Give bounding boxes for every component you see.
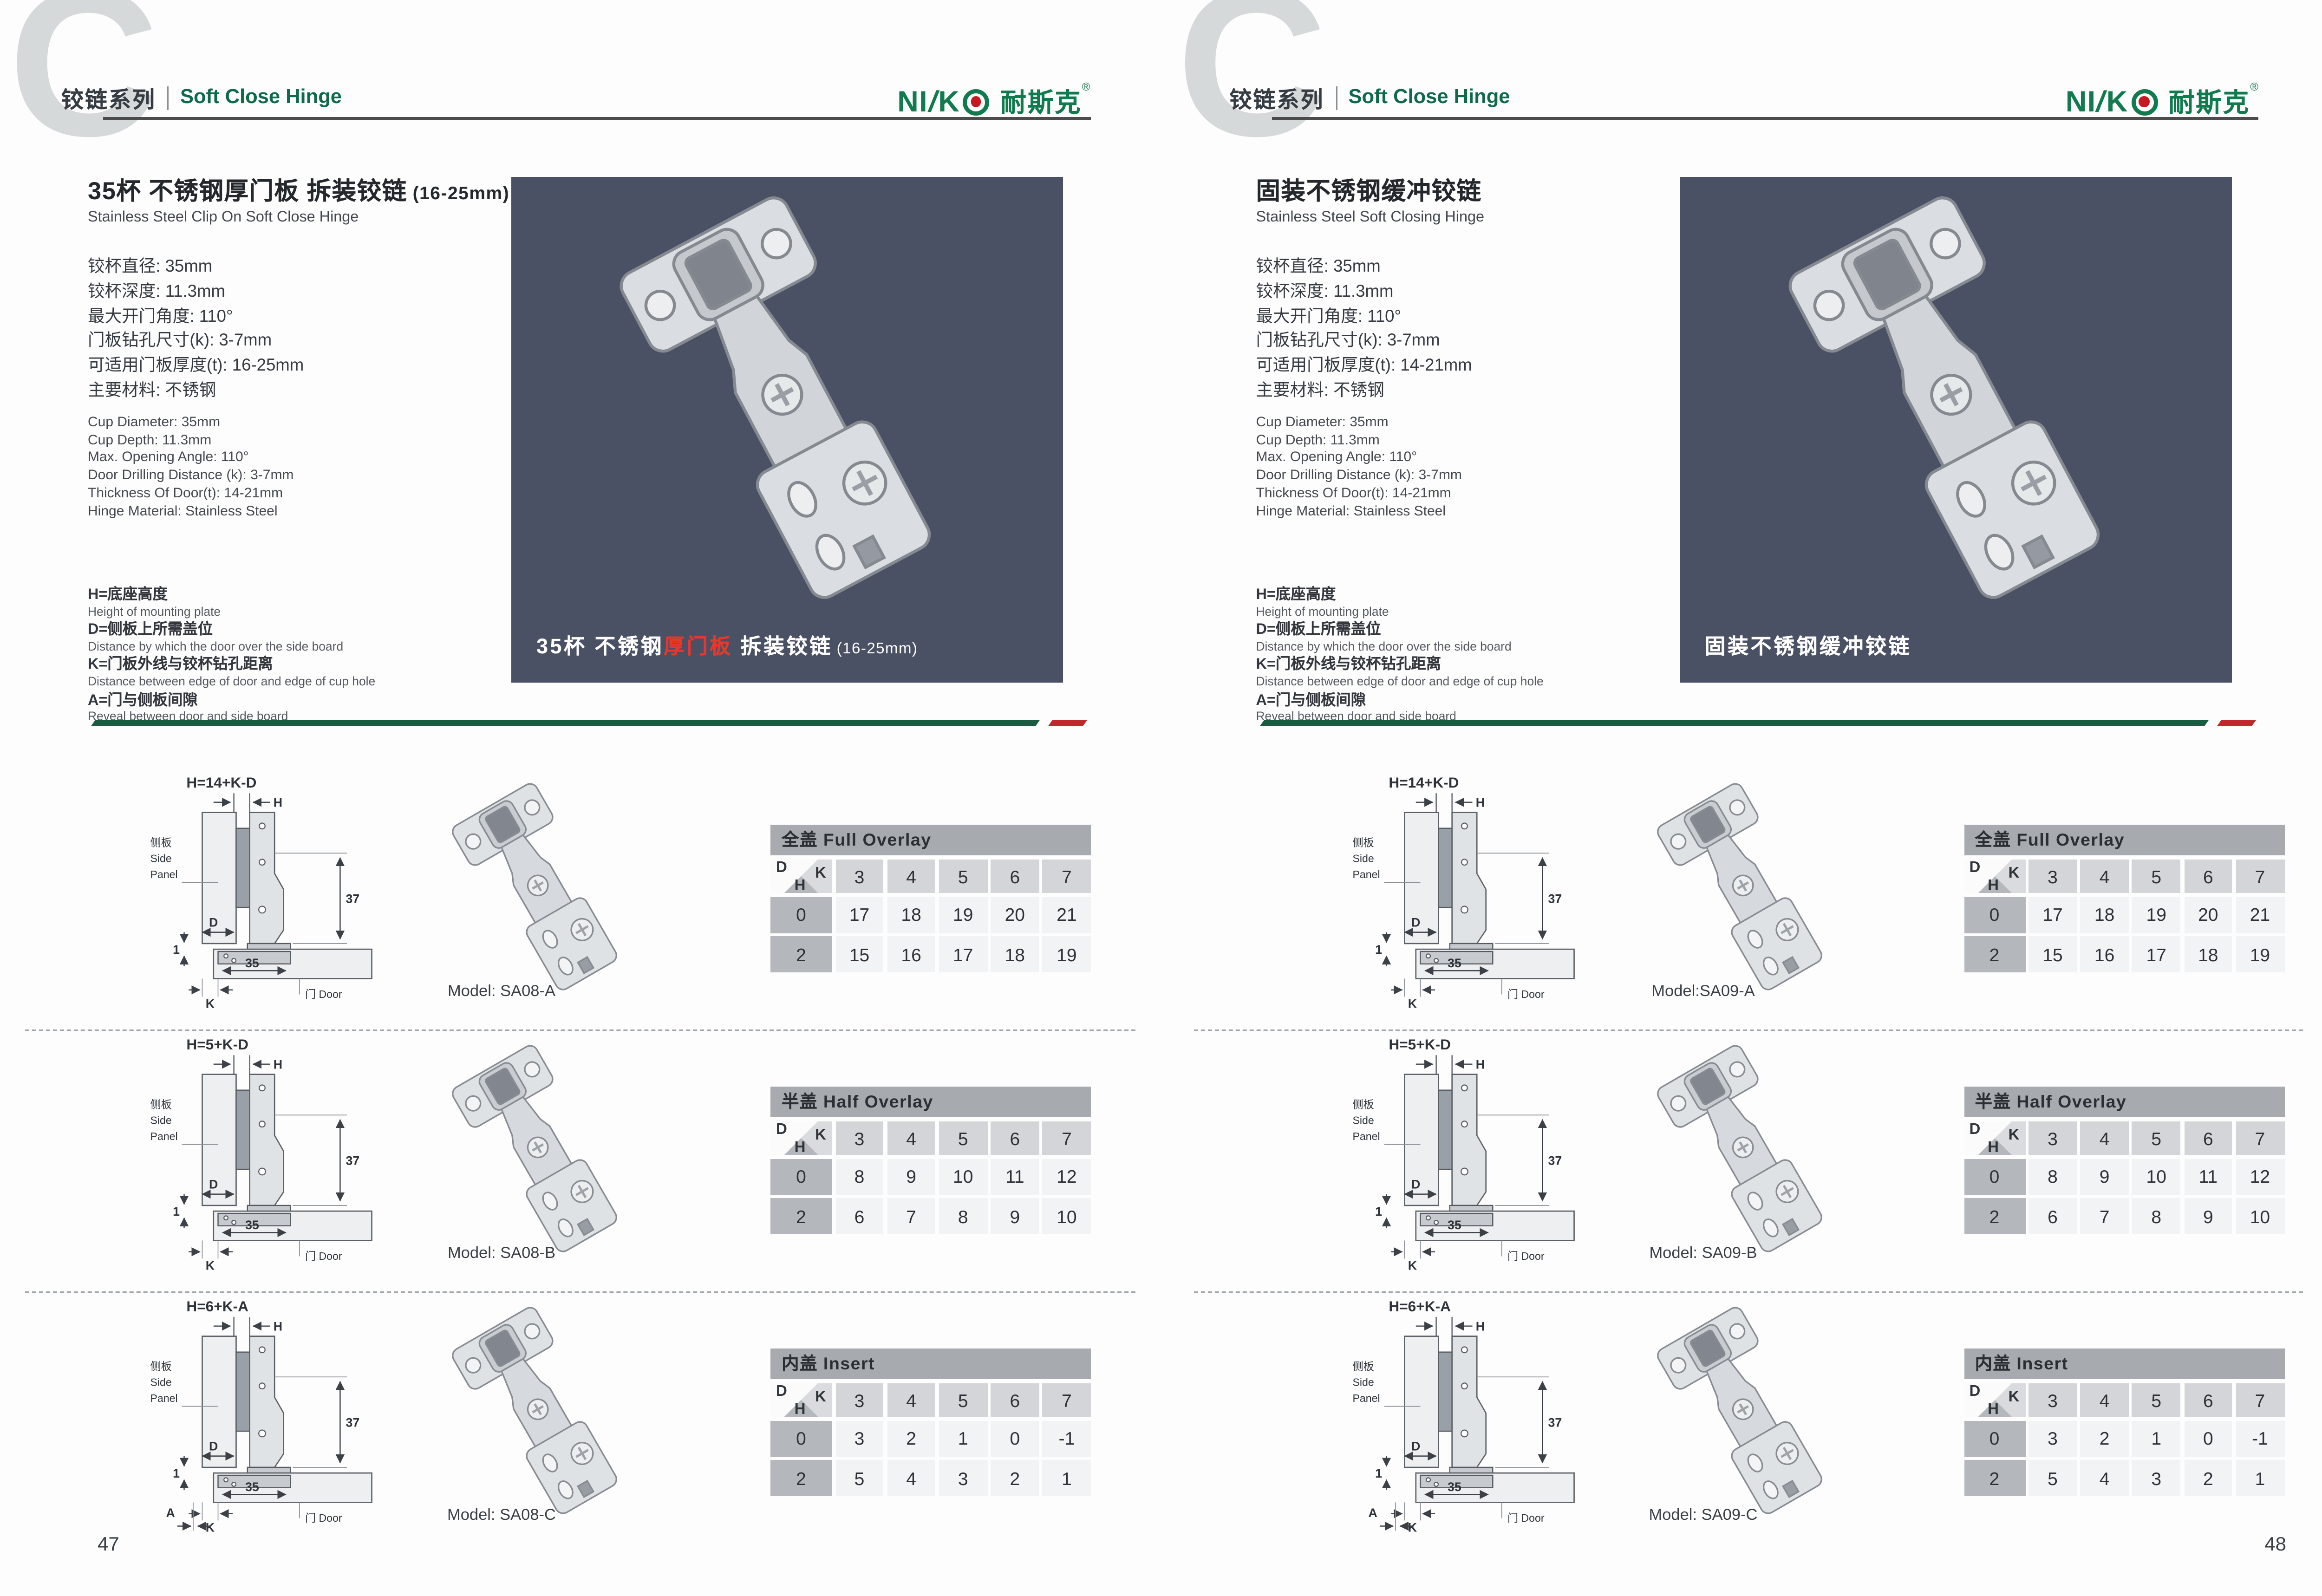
corner-d: D <box>1970 1383 1981 1400</box>
series-header: 铰链系列 Soft Close Hinge <box>61 81 342 114</box>
hinge-arm-shape <box>1451 1075 1485 1205</box>
table-value: 8 <box>835 1159 884 1195</box>
table-value: 7 <box>887 1198 935 1234</box>
side-panel-label-cn: 侧板 <box>1352 1361 1373 1373</box>
table-value: 15 <box>2028 936 2077 972</box>
installation-diagram: H=6+K-A H 侧板 Side Panel 37 <box>111 1296 463 1535</box>
spec-line: Cup Diameter: 35mm <box>1256 415 1462 433</box>
product-photo: 35杯 不锈钢厚门板 拆装铰链(16-25mm) <box>511 177 1063 683</box>
table-value: 5 <box>2028 1460 2077 1496</box>
side-panel-shape <box>202 813 236 944</box>
logo-o-icon <box>963 89 989 115</box>
series-title-en: Soft Close Hinge <box>1348 86 1510 109</box>
table-value: 2 <box>991 1460 1039 1496</box>
dimension-legend: H=底座高度 Height of mounting plate D=侧板上所需盖… <box>1256 586 1674 727</box>
side-panel-label-en: Panel <box>1352 1392 1379 1404</box>
product-photo: 固装不锈钢缓冲铰链 <box>1680 177 2231 683</box>
legend-item: D=侧板上所需盖位 Distance by which the door ove… <box>1256 622 1674 653</box>
page-number: 48 <box>2264 1532 2286 1554</box>
col-header: 7 <box>2236 1383 2284 1417</box>
col-header: 4 <box>887 860 935 893</box>
specs-english: Cup Diameter: 35mmCup Depth: 11.3mmMax. … <box>88 415 294 521</box>
spec-line: 铰杯深度: 11.3mm <box>1256 280 1472 304</box>
col-header: 4 <box>2081 1383 2129 1417</box>
table-value: 8 <box>2028 1159 2077 1195</box>
col-header: 5 <box>2132 860 2180 893</box>
specs-chinese: 铰杯直径: 35mm铰杯深度: 11.3mm最大开门角度: 110°门板钻孔尺寸… <box>88 255 304 404</box>
row-label: 0 <box>1964 1420 2025 1457</box>
side-panel-label-en: Panel <box>150 1392 177 1404</box>
dim-37-label: 37 <box>1547 1415 1561 1429</box>
col-header: 5 <box>939 1121 987 1155</box>
col-header: 4 <box>2081 1121 2129 1155</box>
model-label: Model: SA08-C <box>334 1507 669 1524</box>
hinge-arm-shape <box>1451 813 1485 944</box>
dim-d-label: D <box>209 1177 218 1191</box>
product-title-en: Stainless Steel Clip On Soft Close Hinge <box>88 209 359 226</box>
side-panel-shape <box>1404 1075 1438 1205</box>
side-panel-label-cn: 侧板 <box>150 1099 171 1111</box>
corner-k: K <box>815 865 826 882</box>
col-header: 6 <box>2184 1121 2232 1155</box>
col-header: 7 <box>2236 1121 2284 1155</box>
diagram-formula: H=5+K-D <box>186 1036 248 1053</box>
installation-diagram: H=6+K-A H 侧板 Side Panel 37 <box>1313 1296 1664 1535</box>
col-header: 4 <box>887 1383 935 1417</box>
table-value: 1 <box>2132 1420 2180 1457</box>
legend-cn: D=侧板上所需盖位 <box>1256 622 1674 639</box>
model-label: Model: SA08-B <box>334 1245 669 1262</box>
table-value: 18 <box>887 897 935 933</box>
col-header: 3 <box>835 1121 884 1155</box>
dim-k-label: K <box>206 1521 215 1535</box>
corner-cell: D K H <box>770 860 832 893</box>
side-panel-shape <box>202 1075 236 1205</box>
table-value: 18 <box>991 936 1039 972</box>
hinge-arm-shape <box>250 813 284 944</box>
table-value: 16 <box>887 936 935 972</box>
series-divider <box>167 86 169 110</box>
legend-cn: K=门板外线与铰杯钻孔距离 <box>1256 657 1674 674</box>
photo-caption: 35杯 不锈钢厚门板 拆装铰链(16-25mm) <box>536 631 918 660</box>
photo-caption: 固装不锈钢缓冲铰链 <box>1705 631 1916 660</box>
row-label: 2 <box>770 1198 832 1234</box>
dim-1-label: 1 <box>173 1205 180 1218</box>
corner-h: H <box>795 1401 806 1418</box>
side-panel-label-en: Side <box>150 853 171 865</box>
dim-d-label: D <box>209 915 218 929</box>
dim-d-label: D <box>1411 1439 1420 1453</box>
spec-line: Max. Opening Angle: 110° <box>1256 450 1462 468</box>
legend-cn: H=底座高度 <box>88 586 506 604</box>
table-value: 16 <box>2081 936 2129 972</box>
table-value: 20 <box>2184 897 2232 933</box>
hinge-section: H=6+K-A H 侧板 Side Panel 37 <box>0 1293 1168 1555</box>
model-label: Model: SA09-C <box>1536 1507 1871 1524</box>
table-grid: D K H 3 4 5 6 7 0 8 9 10 11 12 2 6 7 8 9 <box>1964 1121 2284 1234</box>
spec-line: 可适用门板厚度(t): 16-25mm <box>88 354 304 379</box>
corner-d: D <box>776 860 787 876</box>
corner-k: K <box>815 1127 826 1144</box>
table-title: 半盖 Half Overlay <box>770 1087 1091 1117</box>
legend-cn: D=侧板上所需盖位 <box>88 622 506 639</box>
table-value: 2 <box>887 1420 935 1457</box>
table-value: 9 <box>2081 1159 2129 1195</box>
series-divider <box>1336 86 1337 110</box>
dim-h-label: H <box>1475 795 1484 809</box>
legend-en: Distance between edge of door and edge o… <box>88 674 506 689</box>
spec-line: 铰杯深度: 11.3mm <box>88 280 304 304</box>
side-panel-shape <box>1404 1336 1438 1467</box>
spec-line: 门板钻孔尺寸(k): 3-7mm <box>88 329 304 354</box>
product-title-cn: 固装不锈钢缓冲铰链 <box>1256 177 1482 205</box>
table-value: 7 <box>2081 1198 2129 1234</box>
header-rule <box>1272 117 2259 119</box>
table-value: 17 <box>2028 897 2077 933</box>
spec-line: Hinge Material: Stainless Steel <box>88 504 294 521</box>
dim-h-label: H <box>1475 1319 1484 1333</box>
dim-k-label: K <box>1407 1521 1416 1535</box>
corner-cell: D K H <box>1964 860 2025 893</box>
table-grid: D K H 3 4 5 6 7 0 3 2 1 0 -1 2 5 4 3 2 <box>1964 1383 2284 1496</box>
dim-d-label: D <box>1411 915 1420 929</box>
table-value: 17 <box>2132 936 2180 972</box>
col-header: 7 <box>1043 1121 1091 1155</box>
side-panel-label-en: Panel <box>1352 1130 1379 1142</box>
product-title: 35杯 不锈钢厚门板 拆装铰链(16-25mm) <box>88 173 509 208</box>
product-title: 固装不锈钢缓冲铰链 <box>1256 173 1487 208</box>
corner-h: H <box>1988 878 1999 894</box>
col-header: 3 <box>2028 860 2077 893</box>
brand-logo: NI / K 耐斯克 ® <box>897 84 1090 120</box>
table-grid: D K H 3 4 5 6 7 0 8 9 10 11 12 2 6 7 8 9 <box>770 1121 1091 1234</box>
corner-k: K <box>2009 865 2020 882</box>
legend-en: Distance by which the door over the side… <box>1256 639 1674 653</box>
side-panel-label-cn: 侧板 <box>150 1361 171 1373</box>
table-value: 5 <box>835 1460 884 1496</box>
table-value: 1 <box>939 1420 987 1457</box>
mounting-plate-shape <box>236 1090 249 1169</box>
side-panel-label-en: Panel <box>150 868 177 880</box>
table-value: 8 <box>2132 1198 2180 1234</box>
table-value: 19 <box>2132 897 2180 933</box>
registered-mark: ® <box>2250 81 2258 93</box>
corner-cell: D K H <box>1964 1383 2025 1417</box>
diagram-formula: H=6+K-A <box>1388 1298 1450 1315</box>
model-label: Model: SA08-A <box>334 984 669 1000</box>
overlay-table: 全盖 Full Overlay D K H 3 4 5 6 7 0 17 18 … <box>1964 825 2284 972</box>
table-value: 2 <box>2184 1460 2232 1496</box>
sections: H=14+K-D H 侧板 Side Panel 37 <box>0 769 1168 1555</box>
table-value: 8 <box>939 1198 987 1234</box>
spec-line: Thickness Of Door(t): 14-21mm <box>1256 486 1462 503</box>
table-grid: D K H 3 4 5 6 7 0 17 18 19 20 21 2 15 16… <box>770 860 1091 972</box>
caption-suffix: (16-25mm) <box>837 641 918 658</box>
side-panel-label-en: Side <box>1352 853 1373 865</box>
dim-35-label: 35 <box>1447 1218 1461 1232</box>
mounting-plate-shape <box>1438 1090 1451 1169</box>
side-panel-label-cn: 侧板 <box>150 837 171 849</box>
table-value: 18 <box>2081 897 2129 933</box>
table-value: 10 <box>2236 1198 2284 1234</box>
table-value: 2 <box>2081 1420 2129 1457</box>
hinge-arm-shape <box>1451 1336 1485 1467</box>
dim-37-label: 37 <box>346 892 360 905</box>
series-title-en: Soft Close Hinge <box>180 86 342 109</box>
dim-k-label: K <box>1407 997 1416 1011</box>
dim-1-label: 1 <box>1375 943 1382 957</box>
hinge-arm-shape <box>250 1075 284 1205</box>
table-value: 21 <box>2236 897 2284 933</box>
dim-h-label: H <box>274 1057 282 1071</box>
row-label: 0 <box>770 1420 832 1457</box>
spec-line: Max. Opening Angle: 110° <box>88 450 294 468</box>
registered-mark: ® <box>1082 81 1090 93</box>
row-label: 2 <box>1964 936 2025 972</box>
spec-line: Cup Depth: 11.3mm <box>1256 433 1462 450</box>
dim-1-label: 1 <box>1375 1205 1382 1218</box>
brand-logo: NI / K 耐斯克 ® <box>2066 84 2258 120</box>
mounting-plate-shape <box>1438 1352 1451 1431</box>
series-title-cn: 铰链系列 <box>1230 81 1324 114</box>
mounting-plate-shape <box>1438 828 1451 907</box>
table-value: 15 <box>835 936 884 972</box>
product-title-en: Stainless Steel Soft Closing Hinge <box>1256 209 1485 226</box>
legend-en: Distance by which the door over the side… <box>88 639 506 653</box>
row-label: 2 <box>1964 1460 2025 1496</box>
legend-cn: A=门与侧板间隙 <box>1256 692 1674 710</box>
dim-a-group: A <box>1368 1502 1413 1531</box>
corner-h: H <box>1988 1140 1999 1156</box>
dim-h-label: H <box>1475 1057 1484 1071</box>
dim-35-label: 35 <box>245 1218 259 1232</box>
table-value: 9 <box>2184 1198 2232 1234</box>
legend-item: H=底座高度 Height of mounting plate <box>88 586 506 618</box>
installation-diagram: H=5+K-D H 侧板 Side Panel 37 <box>111 1034 463 1273</box>
legend-item: H=底座高度 Height of mounting plate <box>1256 586 1674 618</box>
corner-cell: D K H <box>770 1383 832 1417</box>
dim-1-label: 1 <box>173 1466 180 1480</box>
diagram-formula: H=14+K-D <box>186 774 256 791</box>
legend-en: Height of mounting plate <box>1256 604 1674 619</box>
side-panel-label-en: Panel <box>150 1130 177 1142</box>
table-value: 10 <box>2132 1159 2180 1195</box>
dim-h-label: H <box>274 795 282 809</box>
corner-h: H <box>795 1140 806 1156</box>
legend-item: A=门与侧板间隙 Reveal between door and side bo… <box>1256 692 1674 723</box>
table-value: 17 <box>835 897 884 933</box>
col-header: 3 <box>2028 1121 2077 1155</box>
dim-a-label: A <box>166 1506 175 1520</box>
model-label: Model:SA09-A <box>1536 984 1871 1000</box>
side-panel-label-en: Side <box>1352 1376 1373 1388</box>
table-value: 1 <box>1043 1460 1091 1496</box>
row-label: 0 <box>770 1159 832 1195</box>
dim-35-label: 35 <box>245 1480 259 1494</box>
hinge-section: H=5+K-D H 侧板 Side Panel 37 <box>1168 1031 2322 1293</box>
dim-35-label: 35 <box>1447 1480 1461 1494</box>
dimension-legend: H=底座高度 Height of mounting plate D=侧板上所需盖… <box>88 586 506 727</box>
red-rule <box>2217 720 2256 725</box>
logo-o-icon <box>2131 89 2158 115</box>
col-header: 3 <box>835 860 884 893</box>
mounting-plate-shape <box>236 828 249 907</box>
overlay-table: 半盖 Half Overlay D K H 3 4 5 6 7 0 8 9 10… <box>1964 1087 2284 1234</box>
product-title-suffix: (16-25mm) <box>413 182 510 203</box>
legend-item: K=门板外线与铰杯钻孔距离 Distance between edge of d… <box>1256 657 1674 688</box>
specs-english: Cup Diameter: 35mmCup Depth: 11.3mmMax. … <box>1256 415 1462 521</box>
spec-line: 主要材料: 不锈钢 <box>88 379 304 404</box>
diagram-formula: H=14+K-D <box>1388 774 1458 791</box>
green-rule <box>91 720 1040 725</box>
table-value: 19 <box>1043 936 1091 972</box>
table-value: 3 <box>835 1420 884 1457</box>
table-value: 9 <box>991 1198 1039 1234</box>
green-rule <box>1260 720 2208 725</box>
logo-text: NI <box>2066 87 2096 117</box>
table-value: 0 <box>991 1420 1039 1457</box>
table-title: 全盖 Full Overlay <box>770 825 1091 855</box>
spec-line: Cup Diameter: 35mm <box>88 415 294 433</box>
caption-text: 固装不锈钢缓冲铰链 <box>1705 635 1912 659</box>
logo-text-cn: 耐斯克 <box>2169 84 2250 120</box>
overlay-table: 全盖 Full Overlay D K H 3 4 5 6 7 0 17 18 … <box>770 825 1091 972</box>
dim-k-label: K <box>1407 1259 1416 1273</box>
header-rule <box>103 117 1090 119</box>
col-header: 4 <box>887 1121 935 1155</box>
corner-k: K <box>815 1389 826 1406</box>
corner-cell: D K H <box>770 1121 832 1155</box>
table-value: 6 <box>2028 1198 2077 1234</box>
table-title: 半盖 Half Overlay <box>1964 1087 2284 1117</box>
table-value: 4 <box>2081 1460 2129 1496</box>
spec-line: 铰杯直径: 35mm <box>1256 255 1472 280</box>
table-title: 内盖 Insert <box>770 1348 1091 1379</box>
col-header: 5 <box>939 1383 987 1417</box>
table-value: 3 <box>2028 1420 2077 1457</box>
legend-cn: A=门与侧板间隙 <box>88 692 506 710</box>
model-label: Model: SA09-B <box>1536 1245 1871 1262</box>
row-label: 2 <box>770 936 832 972</box>
product-title-cn: 35杯 不锈钢厚门板 拆装铰链 <box>88 177 407 205</box>
accent-rule <box>93 720 1085 725</box>
series-header: 铰链系列 Soft Close Hinge <box>1230 81 1510 114</box>
spec-line: 最大开门角度: 110° <box>88 305 304 329</box>
table-value: 20 <box>991 897 1039 933</box>
legend-cn: K=门板外线与铰杯钻孔距离 <box>88 657 506 674</box>
table-value: -1 <box>2236 1420 2284 1457</box>
dim-k-label: K <box>206 997 215 1011</box>
diagram-formula: H=6+K-A <box>186 1298 248 1315</box>
col-header: 7 <box>1043 860 1091 893</box>
catalog-page: C 铰链系列 Soft Close Hinge NI / K 耐斯克 ® 固装不… <box>1168 0 2322 1596</box>
spec-line: 铰杯直径: 35mm <box>88 255 304 280</box>
table-value: 11 <box>991 1159 1039 1195</box>
table-value: 10 <box>1043 1198 1091 1234</box>
row-label: 0 <box>770 897 832 933</box>
corner-cell: D K H <box>1964 1121 2025 1155</box>
dim-37-label: 37 <box>346 1153 360 1167</box>
spec-line: 可适用门板厚度(t): 14-21mm <box>1256 354 1472 379</box>
side-panel-label-en: Side <box>1352 1114 1373 1127</box>
col-header: 6 <box>2184 860 2232 893</box>
installation-diagram: H=5+K-D H 侧板 Side Panel 37 <box>1313 1034 1664 1273</box>
col-header: 4 <box>2081 860 2129 893</box>
corner-k: K <box>2009 1127 2020 1144</box>
table-value: 12 <box>2236 1159 2284 1195</box>
table-value: 1 <box>2236 1460 2284 1496</box>
logo-text: NI <box>897 87 928 117</box>
dim-a-group: A <box>166 1502 211 1531</box>
col-header: 6 <box>991 1383 1039 1417</box>
side-panel-shape <box>1404 813 1438 944</box>
spec-line: Cup Depth: 11.3mm <box>88 433 294 450</box>
installation-diagram: H=14+K-D H 侧板 Side Panel 37 <box>111 772 463 1011</box>
table-value: 19 <box>2236 936 2284 972</box>
table-value: 0 <box>2184 1420 2232 1457</box>
spec-line: 门板钻孔尺寸(k): 3-7mm <box>1256 329 1472 354</box>
corner-h: H <box>795 878 806 894</box>
side-panel-shape <box>202 1336 236 1467</box>
corner-d: D <box>776 1383 787 1400</box>
legend-en: Height of mounting plate <box>88 604 506 619</box>
corner-d: D <box>1970 860 1981 876</box>
table-grid: D K H 3 4 5 6 7 0 3 2 1 0 -1 2 5 4 3 2 <box>770 1383 1091 1496</box>
legend-item: D=侧板上所需盖位 Distance by which the door ove… <box>88 622 506 653</box>
dim-37-label: 37 <box>1547 892 1561 905</box>
table-value: 12 <box>1043 1159 1091 1195</box>
side-panel-label-cn: 侧板 <box>1352 837 1373 849</box>
side-panel-label-cn: 侧板 <box>1352 1099 1373 1111</box>
spec-line: 主要材料: 不锈钢 <box>1256 379 1472 404</box>
logo-text: K <box>938 87 960 117</box>
overlay-table: 内盖 Insert D K H 3 4 5 6 7 0 3 2 1 0 -1 2 <box>1964 1348 2284 1496</box>
col-header: 3 <box>835 1383 884 1417</box>
legend-cn: H=底座高度 <box>1256 586 1674 604</box>
spec-line: 最大开门角度: 110° <box>1256 305 1472 329</box>
col-header: 7 <box>2236 860 2284 893</box>
table-value: 10 <box>939 1159 987 1195</box>
catalog-spread: C 铰链系列 Soft Close Hinge NI / K 耐斯克 ® 35杯… <box>0 0 2322 1596</box>
table-title: 全盖 Full Overlay <box>1964 825 2284 855</box>
col-header: 6 <box>991 1121 1039 1155</box>
sections: H=14+K-D H 侧板 Side Panel 37 <box>1168 769 2322 1555</box>
side-panel-label-en: Side <box>150 1376 171 1388</box>
spec-line: Thickness Of Door(t): 14-21mm <box>88 486 294 503</box>
red-rule <box>1049 720 1087 725</box>
table-value: 3 <box>2132 1460 2180 1496</box>
catalog-page: C 铰链系列 Soft Close Hinge NI / K 耐斯克 ® 35杯… <box>0 0 1168 1596</box>
logo-text: K <box>2107 87 2128 117</box>
spec-line: Door Drilling Distance (k): 3-7mm <box>1256 468 1462 486</box>
col-header: 6 <box>991 860 1039 893</box>
table-value: 6 <box>835 1198 884 1234</box>
side-panel-label-en: Side <box>150 1114 171 1127</box>
table-value: 18 <box>2184 936 2232 972</box>
table-value: 11 <box>2184 1159 2232 1195</box>
installation-diagram: H=14+K-D H 侧板 Side Panel 37 <box>1313 772 1664 1011</box>
col-header: 5 <box>2132 1121 2180 1155</box>
table-value: 9 <box>887 1159 935 1195</box>
dim-37-label: 37 <box>1547 1153 1561 1167</box>
page-number: 47 <box>98 1532 119 1554</box>
dim-35-label: 35 <box>1447 956 1461 970</box>
dim-d-label: D <box>209 1439 218 1453</box>
table-value: 17 <box>939 936 987 972</box>
diagram-formula: H=5+K-D <box>1388 1036 1450 1053</box>
dim-k-label: K <box>206 1259 215 1273</box>
hinge-section: H=14+K-D H 侧板 Side Panel 37 <box>1168 769 2322 1031</box>
